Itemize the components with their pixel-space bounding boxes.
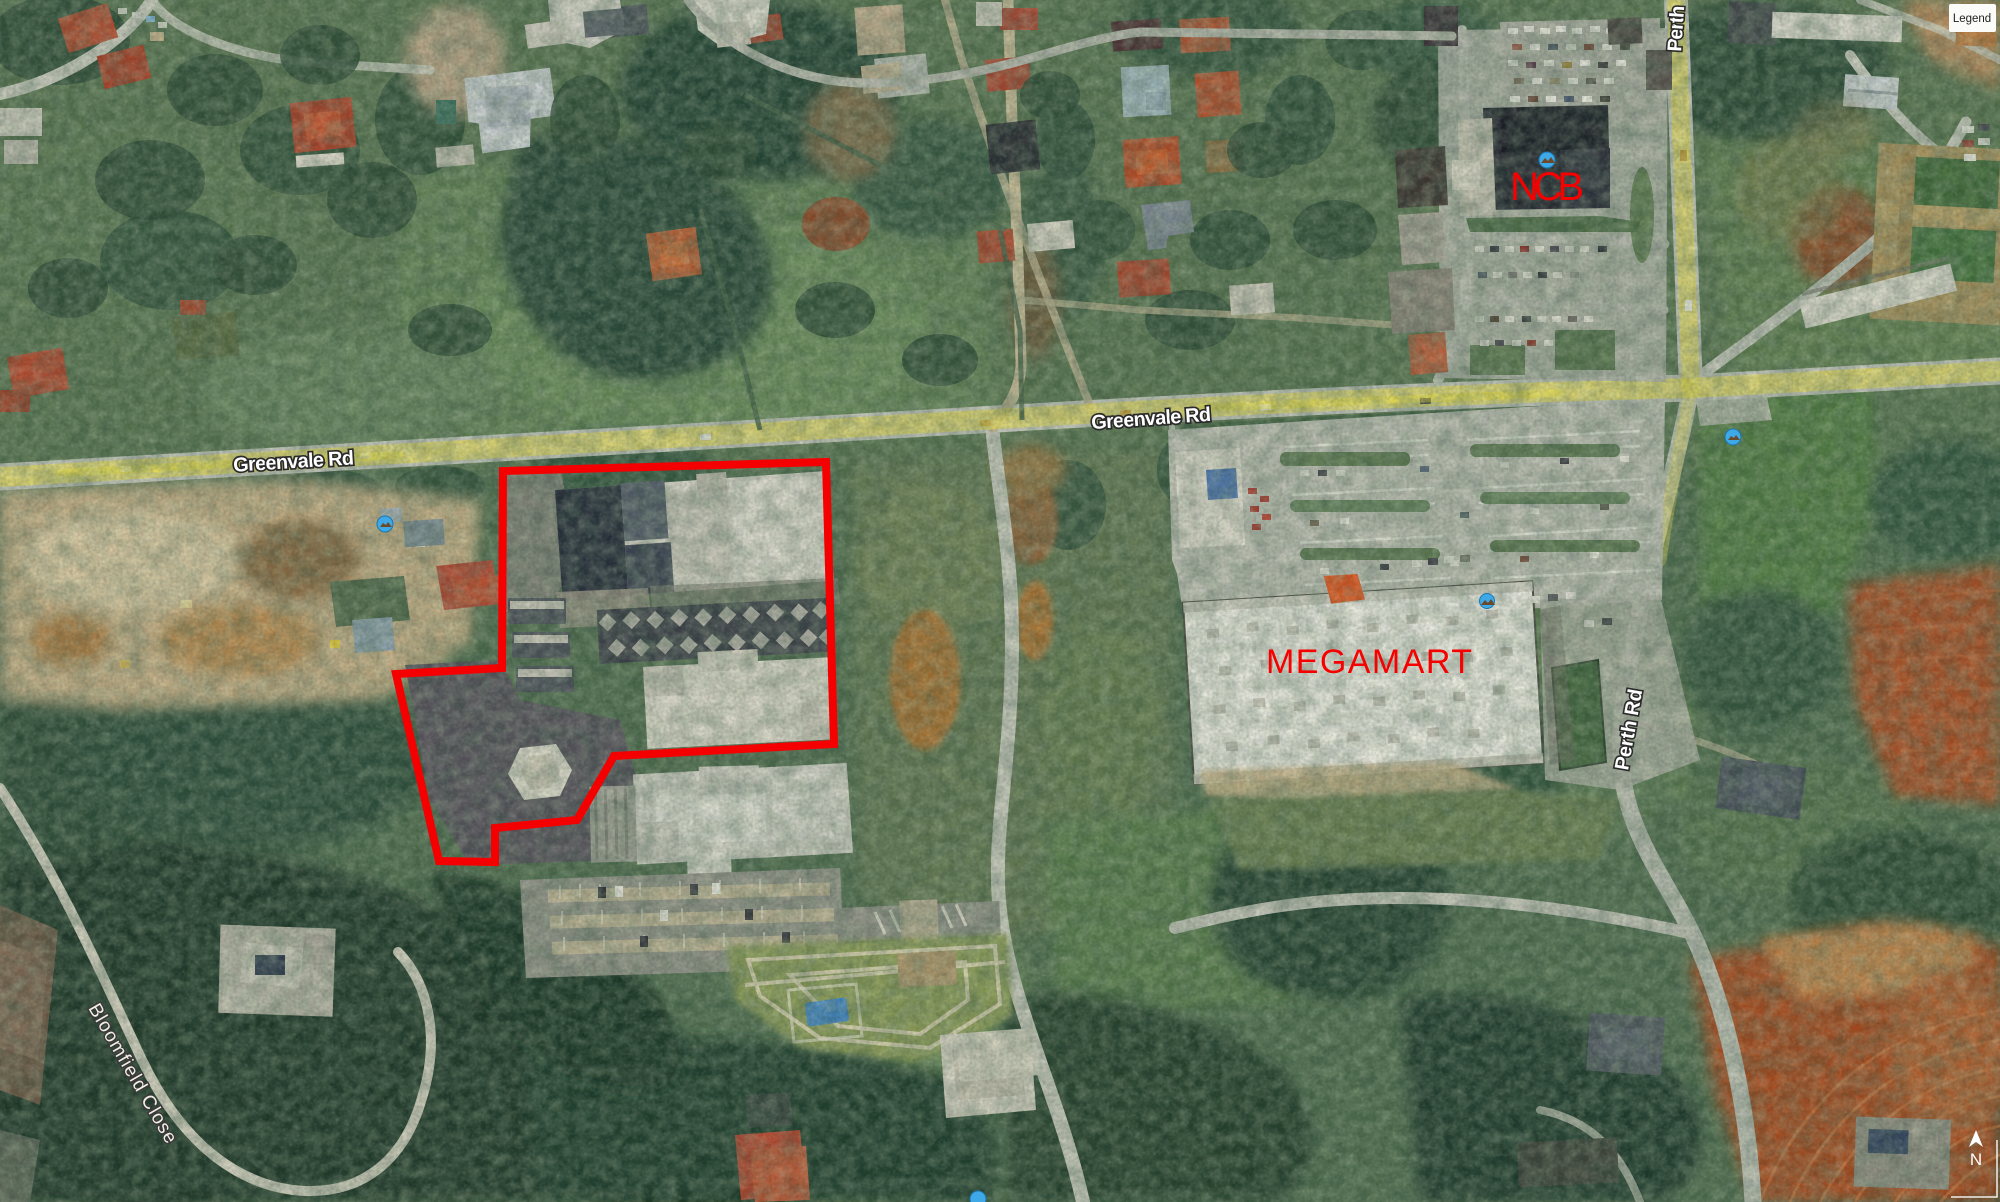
svg-text:N: N [1970,1150,1982,1169]
svg-text:MEGAMART: MEGAMART [1266,643,1472,681]
svg-text:Legend: Legend [1953,13,1991,25]
svg-text:NCB: NCB [1510,165,1584,209]
svg-text:Perth: Perth [1664,5,1689,52]
